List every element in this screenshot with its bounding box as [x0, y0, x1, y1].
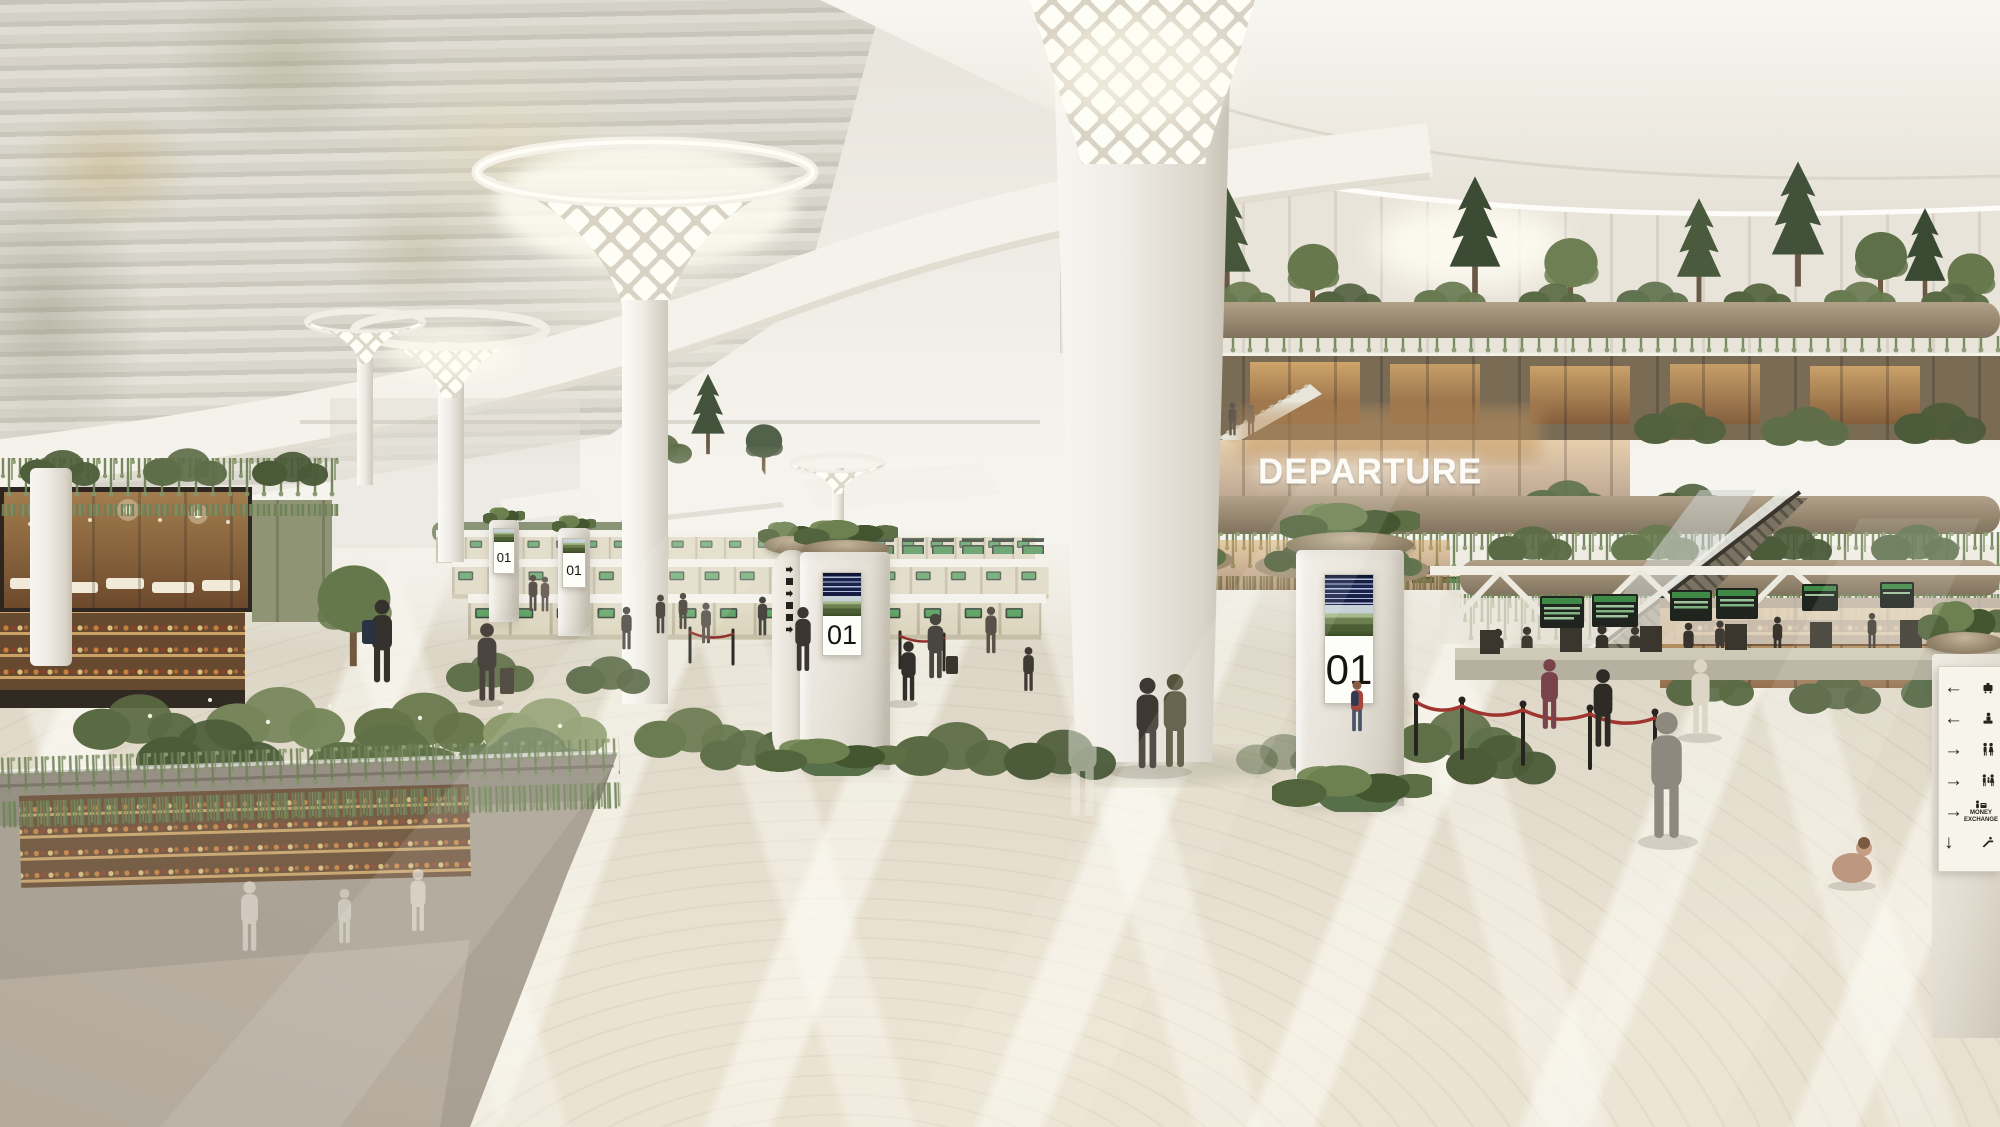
- family-restroom-icon: [1980, 773, 1996, 788]
- landscape-screen: [563, 539, 585, 553]
- wayfinding-glyph: [786, 590, 793, 597]
- wayfinding-glyph: [786, 578, 793, 585]
- checkin-row-pillar-mid: 01: [766, 518, 896, 770]
- flight-info-screen: [1325, 575, 1373, 605]
- airport-terminal-rendering: DEPARTURE 01 01 01: [0, 0, 2000, 1127]
- information-desk-icon: [1980, 711, 1996, 726]
- mid-haze: [280, 462, 1080, 612]
- baggage-claim-icon: [1980, 680, 1996, 695]
- wayfinding-row: → MONEY EXCHANGE: [1941, 796, 1999, 827]
- pillar-base-shrubs: [756, 736, 906, 776]
- checkin-row-number: 01: [494, 542, 514, 573]
- money-exchange-icon: MONEY EXCHANGE: [1963, 800, 1999, 824]
- wayfinding-pillar: ← ← → →: [1918, 598, 2000, 1038]
- pillar-display: 01: [822, 572, 862, 656]
- arrow-right-glyph: →: [1944, 771, 1963, 790]
- wayfinding-sign: ← ← → →: [1938, 666, 2000, 872]
- pillar-planter: [1926, 632, 2000, 654]
- person: [790, 606, 816, 672]
- arrow-left-glyph: ←: [1944, 709, 1963, 728]
- wayfinding-row: ↓: [1941, 827, 1999, 858]
- landscape-screen: [823, 596, 861, 616]
- checkin-row-pillar-far-b: 01: [556, 514, 592, 636]
- flight-info-screen: [823, 573, 861, 596]
- landscape-screen: [494, 529, 514, 542]
- escalator-down-icon: [1980, 835, 1996, 850]
- wayfinding-row: ←: [1941, 703, 1999, 734]
- scene-graphics: [0, 0, 2000, 1127]
- wayfinding-row: →: [1941, 765, 1999, 796]
- left-restaurant: [0, 448, 340, 708]
- wayfinding-row: →: [1941, 734, 1999, 765]
- wayfinding-glyph: [786, 566, 793, 573]
- person: [1346, 680, 1368, 732]
- wayfinding-row: ←: [1941, 672, 1999, 703]
- pillar-display: 01: [562, 538, 586, 588]
- arrow-right-glyph: →: [1944, 740, 1963, 759]
- checkin-row-pillar-far-a: 01: [487, 506, 521, 622]
- checkin-row-number: 01: [563, 553, 585, 587]
- departure-sign: DEPARTURE: [1258, 452, 1488, 492]
- arrow-right-glyph: →: [1944, 802, 1963, 821]
- pillar-display: 01: [493, 528, 515, 574]
- checkin-row-pillar-near: 01: [1290, 500, 1410, 820]
- checkin-row-number: 01: [823, 616, 861, 655]
- landscape-screen: [1325, 605, 1373, 637]
- arrow-down-glyph: ↓: [1944, 833, 1954, 852]
- pillar-base-shrubs: [1272, 762, 1432, 812]
- restrooms-icon: [1980, 742, 1996, 757]
- sunken-level: [0, 738, 621, 1127]
- arrow-left-glyph: ←: [1944, 678, 1963, 697]
- departure-sign-text: DEPARTURE: [1258, 452, 1482, 491]
- money-exchange-label: MONEY EXCHANGE: [1963, 810, 1999, 824]
- crouching-child: [1832, 837, 1872, 883]
